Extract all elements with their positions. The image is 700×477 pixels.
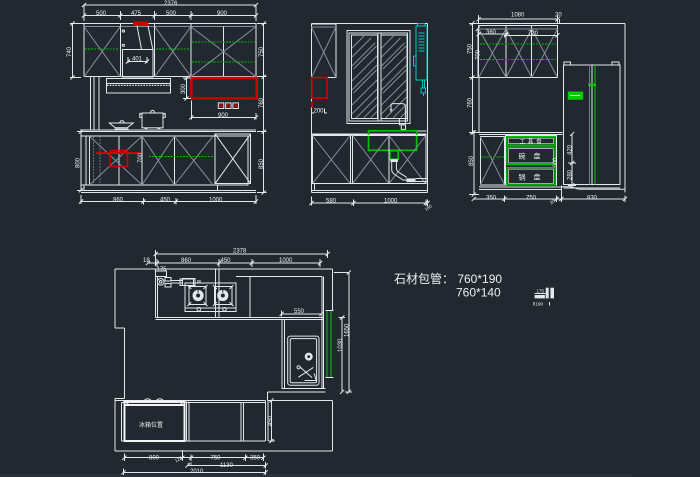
svg-text:760: 760 [468, 97, 474, 108]
svg-text:750: 750 [526, 196, 537, 202]
svg-text:860: 860 [181, 258, 192, 264]
svg-text:860: 860 [113, 197, 124, 203]
svg-text:700: 700 [476, 49, 482, 60]
svg-text:200: 200 [314, 109, 325, 115]
svg-text:450: 450 [268, 415, 274, 426]
svg-text:800: 800 [76, 157, 82, 168]
svg-text:580: 580 [326, 199, 337, 205]
svg-text:750: 750 [259, 46, 265, 57]
svg-text:350: 350 [250, 456, 261, 462]
svg-text:900: 900 [218, 113, 229, 119]
svg-text:420: 420 [568, 144, 574, 155]
svg-text:850: 850 [469, 155, 475, 166]
svg-text:280: 280 [568, 169, 574, 180]
svg-text:石材包管： 760*190: 石材包管： 760*190 [394, 271, 502, 286]
svg-text:700: 700 [138, 152, 144, 163]
svg-text:175: 175 [157, 267, 168, 273]
svg-text:760: 760 [259, 97, 265, 108]
svg-text:750: 750 [211, 456, 222, 462]
svg-text:175: 175 [537, 289, 545, 294]
svg-text:750: 750 [468, 43, 474, 54]
svg-text:401: 401 [132, 57, 143, 63]
svg-text:1000: 1000 [209, 197, 223, 203]
svg-text:工具盘: 工具盘 [520, 137, 545, 145]
svg-text:600: 600 [553, 158, 559, 167]
svg-text:1000: 1000 [384, 199, 398, 205]
svg-text:760*140: 760*140 [456, 286, 501, 300]
svg-text:450: 450 [221, 258, 232, 264]
svg-text:2378: 2378 [233, 249, 247, 255]
svg-text:冰箱位置: 冰箱位置 [139, 421, 163, 429]
svg-text:350: 350 [486, 196, 497, 202]
svg-text:1030: 1030 [338, 338, 344, 352]
svg-text:1080: 1080 [511, 13, 525, 19]
svg-text:500: 500 [166, 11, 177, 17]
svg-text:1650: 1650 [345, 323, 351, 337]
svg-text:740: 740 [67, 46, 73, 57]
svg-text:450: 450 [160, 197, 171, 203]
svg-text:475: 475 [131, 11, 142, 17]
svg-text:2376: 2376 [164, 1, 178, 7]
svg-text:1130: 1130 [220, 463, 234, 469]
svg-text:900: 900 [217, 11, 228, 17]
svg-text:1000: 1000 [279, 258, 293, 264]
svg-text:850: 850 [259, 158, 265, 169]
svg-text:300: 300 [181, 83, 187, 94]
svg-text:18: 18 [143, 258, 150, 264]
svg-text:500: 500 [96, 11, 107, 17]
svg-text:830: 830 [587, 196, 598, 202]
svg-text:800: 800 [149, 456, 160, 462]
svg-text:550: 550 [294, 309, 305, 315]
svg-text:360: 360 [486, 30, 497, 36]
svg-text:2010: 2010 [190, 469, 204, 475]
svg-text:720: 720 [528, 31, 539, 37]
svg-text:190: 190 [536, 302, 544, 307]
